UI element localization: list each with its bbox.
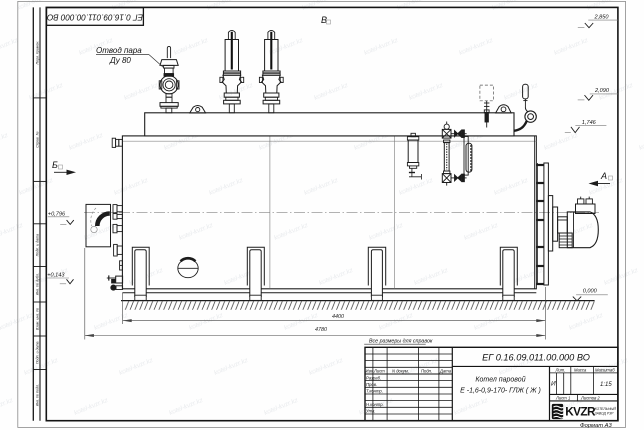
- svg-text:Н.контр.: Н.контр.: [366, 402, 384, 407]
- svg-text:ЕГ 0.16.09.011.00.000 ВО: ЕГ 0.16.09.011.00.000 ВО: [482, 352, 590, 362]
- svg-text:2,850: 2,850: [594, 15, 610, 21]
- svg-text:kotel-kvzr.kz: kotel-kvzr.kz: [0, 222, 25, 242]
- svg-text:Лит.: Лит.: [555, 368, 566, 373]
- svg-text:N докум.: N докум.: [392, 369, 409, 374]
- svg-text:kotel-kvzr.kz: kotel-kvzr.kz: [458, 37, 495, 57]
- svg-text:kotel-kvzr.kz: kotel-kvzr.kz: [173, 37, 210, 57]
- svg-text:Масса: Масса: [574, 368, 587, 373]
- svg-text:kotel-kvzr.kz: kotel-kvzr.kz: [568, 312, 605, 332]
- svg-text:Формат А3: Формат А3: [580, 423, 612, 429]
- svg-text:Утв.: Утв.: [366, 409, 376, 414]
- svg-text:kotel-kvzr.kz: kotel-kvzr.kz: [463, 222, 500, 242]
- svg-text:А: А: [600, 171, 607, 181]
- svg-text:ЕГ 0.16.09.011.00.000 ВО: ЕГ 0.16.09.011.00.000 ВО: [46, 12, 143, 21]
- svg-text:1:15: 1:15: [600, 382, 612, 388]
- svg-text:Взам. инв. №: Взам. инв. №: [35, 308, 39, 330]
- svg-text:kotel-kvzr.kz: kotel-kvzr.kz: [113, 177, 150, 197]
- svg-text:kotel-kvzr.kz: kotel-kvzr.kz: [493, 177, 530, 197]
- svg-text:Отвод пара: Отвод пара: [96, 46, 142, 55]
- svg-text:Е -1,6-0,9-170- ГЛЖ ( Ж ): Е -1,6-0,9-170- ГЛЖ ( Ж ): [460, 388, 541, 395]
- svg-text:2,090: 2,090: [594, 88, 610, 94]
- svg-text:kotel-kvzr.kz: kotel-kvzr.kz: [453, 397, 490, 417]
- svg-text:Подп. и дата: Подп. и дата: [35, 234, 39, 257]
- svg-text:kotel-kvzr.kz: kotel-kvzr.kz: [73, 397, 110, 417]
- svg-text:Инв. № дубл.: Инв. № дубл.: [35, 273, 39, 295]
- svg-text:kotel-kvzr.kz: kotel-kvzr.kz: [178, 222, 215, 242]
- svg-text:4400: 4400: [332, 314, 344, 320]
- svg-text:kotel-kvzr.kz: kotel-kvzr.kz: [218, 82, 255, 102]
- svg-text:Разраб.: Разраб.: [366, 375, 381, 380]
- svg-text:+0,796: +0,796: [48, 211, 66, 217]
- svg-text:KVZR: KVZR: [565, 404, 596, 418]
- svg-text:Подп.: Подп.: [421, 369, 432, 374]
- svg-text:kotel-kvzr.kz: kotel-kvzr.kz: [368, 222, 405, 242]
- svg-text:kotel-kvzr.kz: kotel-kvzr.kz: [263, 397, 300, 417]
- svg-text:4780: 4780: [315, 327, 327, 333]
- svg-text:Масштаб: Масштаб: [595, 368, 615, 373]
- svg-text:kotel-kvzr.kz: kotel-kvzr.kz: [308, 357, 345, 377]
- svg-text:0,000: 0,000: [583, 288, 598, 294]
- svg-text:КОТЕЛЬНЫЙ: КОТЕЛЬНЫЙ: [595, 407, 617, 411]
- svg-text:kotel-kvzr.kz: kotel-kvzr.kz: [18, 177, 55, 197]
- svg-text:Лист: Лист: [373, 369, 385, 374]
- svg-text:kotel-kvzr.kz: kotel-kvzr.kz: [363, 37, 400, 57]
- svg-text:kotel-kvzr.kz: kotel-kvzr.kz: [23, 357, 60, 377]
- svg-text:kotel-kvzr.kz: kotel-kvzr.kz: [413, 267, 450, 287]
- svg-text:kotel-kvzr.kz: kotel-kvzr.kz: [408, 82, 445, 102]
- svg-text:kotel-kvzr.kz: kotel-kvzr.kz: [638, 132, 644, 152]
- svg-text:kotel-kvzr.kz: kotel-kvzr.kz: [603, 267, 640, 287]
- svg-text:Т.контр.: Т.контр.: [366, 389, 383, 394]
- svg-text:kotel-kvzr.kz: kotel-kvzr.kz: [93, 312, 130, 332]
- svg-text:kotel-kvzr.kz: kotel-kvzr.kz: [0, 132, 10, 152]
- svg-text:kotel-kvzr.kz: kotel-kvzr.kz: [313, 82, 350, 102]
- svg-text:kotel-kvzr.kz: kotel-kvzr.kz: [273, 222, 310, 242]
- svg-text:ЗАВОД РЗР: ЗАВОД РЗР: [595, 411, 615, 415]
- svg-text:kotel-kvzr.kz: kotel-kvzr.kz: [303, 177, 340, 197]
- svg-text:kotel-kvzr.kz: kotel-kvzr.kz: [543, 132, 580, 152]
- svg-text:1,746: 1,746: [582, 120, 597, 126]
- svg-text:Листов 2: Листов 2: [580, 396, 600, 401]
- svg-text:kotel-kvzr.kz: kotel-kvzr.kz: [168, 397, 205, 417]
- svg-text:Справ. №: Справ. №: [35, 131, 39, 147]
- svg-text:Дата: Дата: [439, 369, 452, 374]
- svg-text:kotel-kvzr.kz: kotel-kvzr.kz: [0, 37, 20, 57]
- svg-text:kotel-kvzr.kz: kotel-kvzr.kz: [503, 82, 540, 102]
- svg-text:Перв. примен.: Перв. примен.: [35, 41, 39, 65]
- svg-text:Б: Б: [52, 160, 58, 170]
- svg-text:kotel-kvzr.kz: kotel-kvzr.kz: [0, 397, 15, 417]
- svg-text:Инв. № подл.: Инв. № подл.: [35, 384, 39, 406]
- svg-text:kotel-kvzr.kz: kotel-kvzr.kz: [208, 177, 245, 197]
- svg-text:+0,143: +0,143: [47, 272, 65, 278]
- svg-text:Подп. и дата: Подп. и дата: [35, 341, 39, 364]
- svg-text:kotel-kvzr.kz: kotel-kvzr.kz: [473, 312, 510, 332]
- svg-text:Лист 1: Лист 1: [555, 396, 570, 401]
- svg-text:И: И: [551, 381, 556, 388]
- svg-text:Пров.: Пров.: [366, 382, 377, 387]
- svg-text:В: В: [321, 15, 327, 25]
- svg-text:kotel-kvzr.kz: kotel-kvzr.kz: [118, 357, 155, 377]
- svg-text:kotel-kvzr.kz: kotel-kvzr.kz: [123, 82, 160, 102]
- svg-text:kotel-kvzr.kz: kotel-kvzr.kz: [398, 177, 435, 197]
- svg-text:kotel-kvzr.kz: kotel-kvzr.kz: [553, 37, 590, 57]
- svg-text:kotel-kvzr.kz: kotel-kvzr.kz: [68, 132, 105, 152]
- svg-text:kotel-kvzr.kz: kotel-kvzr.kz: [0, 312, 35, 332]
- svg-text:Котел паровой: Котел паровой: [475, 376, 525, 384]
- svg-text:Ду 80: Ду 80: [109, 56, 131, 65]
- svg-text:kotel-kvzr.kz: kotel-kvzr.kz: [213, 357, 250, 377]
- svg-text:Все размеры для справок: Все размеры для справок: [369, 338, 433, 344]
- svg-text:kotel-kvzr.kz: kotel-kvzr.kz: [188, 312, 225, 332]
- svg-text:kotel-kvzr.kz: kotel-kvzr.kz: [378, 312, 415, 332]
- svg-text:kotel-kvzr.kz: kotel-kvzr.kz: [318, 267, 355, 287]
